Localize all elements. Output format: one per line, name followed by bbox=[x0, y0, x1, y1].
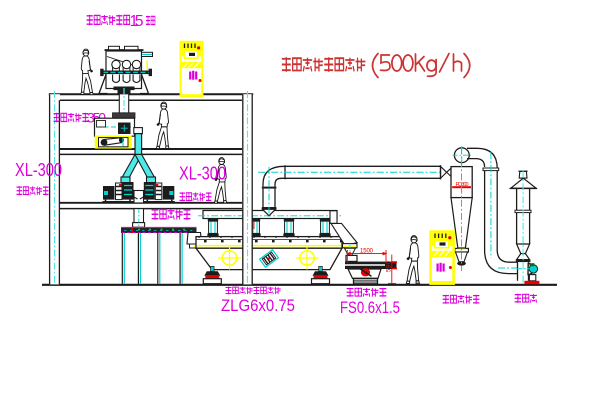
svg-text:FS0.6x1.5: FS0.6x1.5 bbox=[340, 299, 400, 317]
svg-text:XL-300: XL-300 bbox=[179, 164, 226, 184]
svg-text:ZLG6x0.75: ZLG6x0.75 bbox=[221, 297, 295, 315]
svg-text:590: 590 bbox=[387, 260, 393, 272]
svg-text:XL-300: XL-300 bbox=[15, 160, 62, 180]
svg-text:1.5: 1.5 bbox=[130, 13, 144, 30]
svg-text:1500: 1500 bbox=[360, 248, 374, 254]
